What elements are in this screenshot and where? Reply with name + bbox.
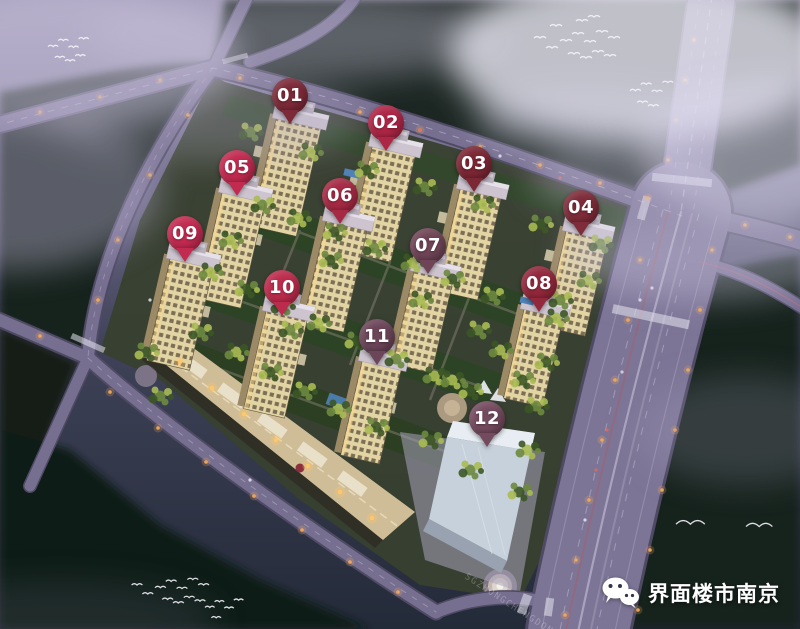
building-marker-11: 11 — [359, 319, 395, 355]
marker-label: 09 — [172, 225, 198, 243]
aerial-night-rendering: 01 02 03 04 05 06 07 08 09 10 11 12 SGZH… — [0, 0, 800, 629]
building-marker-04: 04 — [563, 190, 599, 226]
marker-label: 04 — [568, 199, 594, 217]
building-marker-08: 08 — [521, 266, 557, 302]
marker-label: 08 — [526, 275, 552, 293]
marker-label: 01 — [277, 87, 303, 105]
building-marker-02: 02 — [368, 105, 404, 141]
building-marker-03: 03 — [456, 146, 492, 182]
building-marker-05: 05 — [219, 150, 255, 186]
building-marker-06: 06 — [322, 178, 358, 214]
watermark-text: 界面楼市南京 — [648, 578, 780, 608]
wechat-icon — [602, 577, 640, 609]
building-marker-10: 10 — [264, 270, 300, 306]
marker-label: 11 — [364, 328, 390, 346]
building-marker-01: 01 — [272, 78, 308, 114]
marker-label: 06 — [327, 187, 353, 205]
marker-label: 12 — [474, 410, 500, 428]
building-marker-07: 07 — [410, 228, 446, 264]
marker-label: 03 — [461, 155, 487, 173]
marker-label: 02 — [373, 114, 399, 132]
building-marker-09: 09 — [167, 216, 203, 252]
marker-label: 05 — [224, 159, 250, 177]
marker-label: 07 — [415, 237, 441, 255]
marker-label: 10 — [269, 279, 295, 297]
scene-canvas — [0, 0, 800, 629]
building-marker-12: 12 — [469, 401, 505, 437]
watermark: 界面楼市南京 — [602, 577, 780, 609]
